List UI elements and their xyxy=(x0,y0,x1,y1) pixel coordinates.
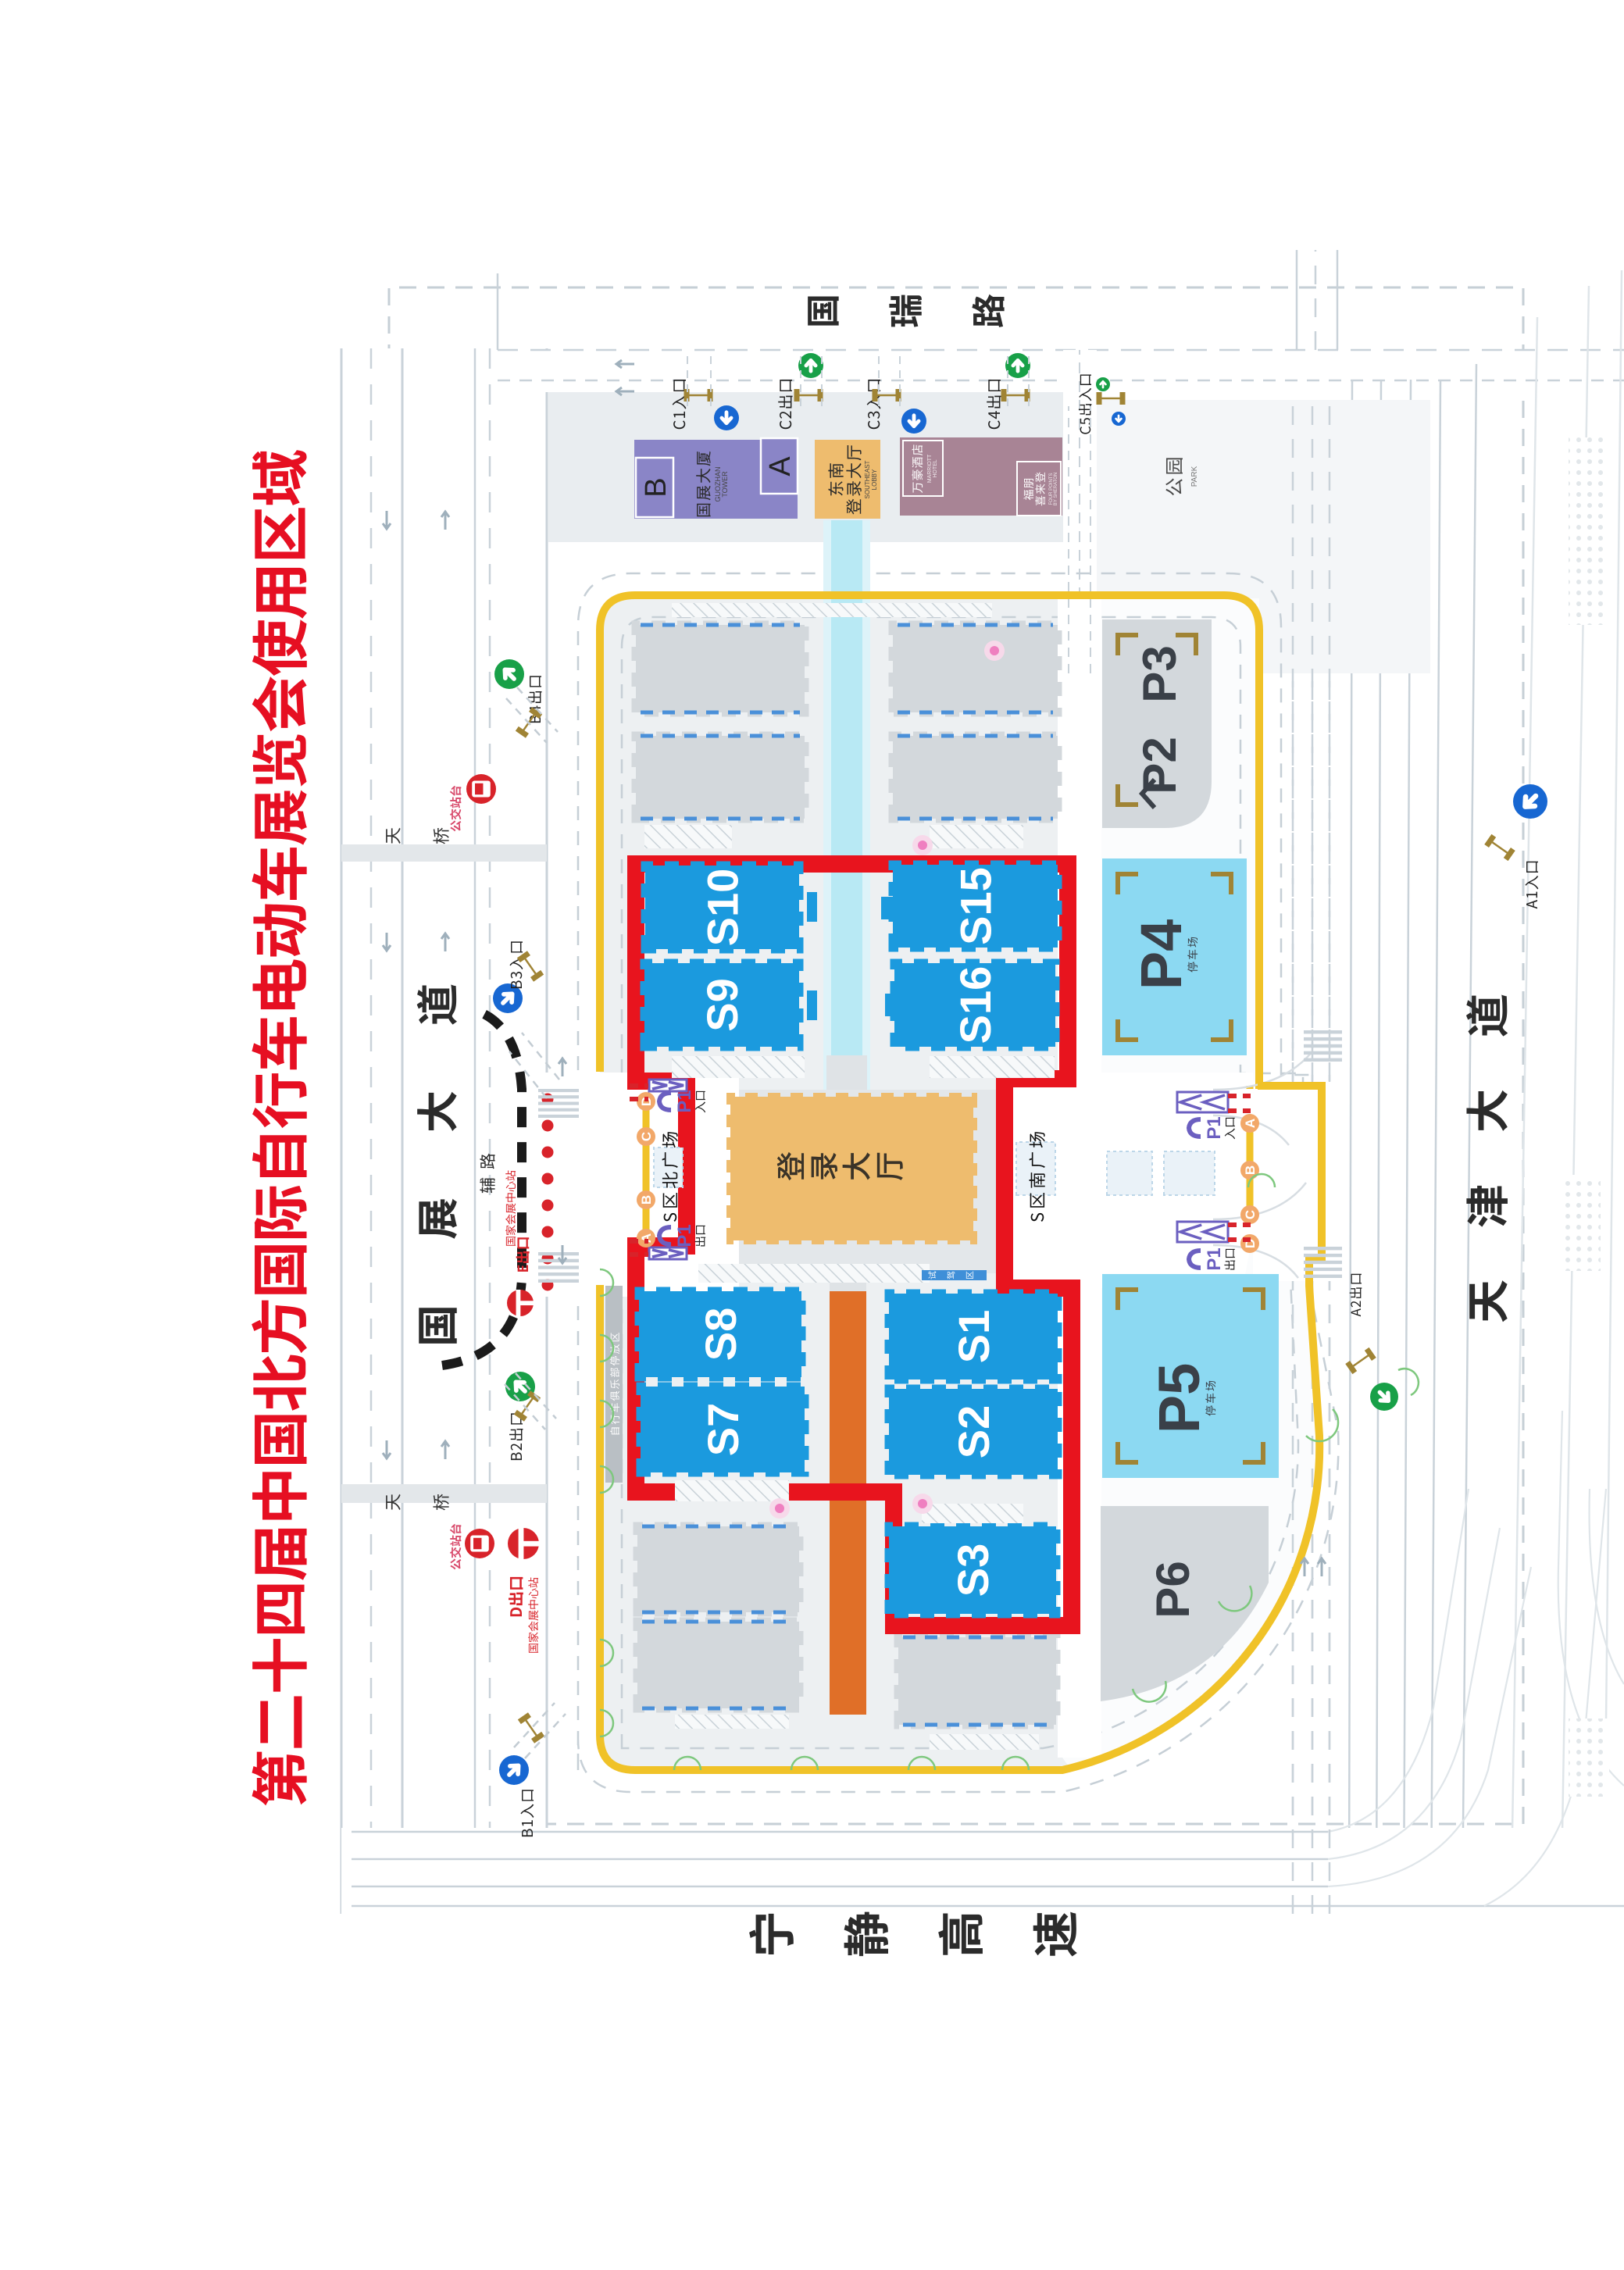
svg-text:S2: S2 xyxy=(949,1405,998,1459)
svg-text:S7: S7 xyxy=(698,1403,748,1457)
svg-text:A: A xyxy=(764,456,797,476)
svg-text:S10: S10 xyxy=(698,869,748,947)
svg-text:P6: P6 xyxy=(1147,1561,1199,1618)
svg-text:PARK: PARK xyxy=(1190,466,1199,487)
svg-text:P4: P4 xyxy=(1129,919,1194,990)
svg-text:P2: P2 xyxy=(1133,737,1186,794)
svg-text:S15: S15 xyxy=(951,867,1001,945)
svg-text:B: B xyxy=(640,477,673,497)
svg-text:TOWER: TOWER xyxy=(721,471,729,498)
svg-text:S8: S8 xyxy=(696,1308,745,1362)
svg-text:P1: P1 xyxy=(674,1224,695,1247)
svg-text:B: B xyxy=(1243,1165,1258,1175)
svg-text:P1: P1 xyxy=(1204,1247,1225,1270)
svg-text:S9: S9 xyxy=(698,978,747,1032)
svg-text:B: B xyxy=(639,1195,654,1205)
svg-text:HOTEL: HOTEL xyxy=(933,459,938,477)
svg-text:S16: S16 xyxy=(951,966,1000,1044)
svg-text:SOUTHEAST: SOUTHEAST xyxy=(864,460,871,498)
svg-text:MARRIOTT: MARRIOTT xyxy=(927,454,933,483)
svg-text:S3: S3 xyxy=(948,1544,998,1597)
svg-text:C: C xyxy=(639,1132,654,1141)
svg-text:LOBBY: LOBBY xyxy=(871,469,878,490)
svg-text:P1: P1 xyxy=(1204,1116,1225,1139)
svg-text:S1: S1 xyxy=(949,1310,998,1364)
svg-text:A: A xyxy=(1243,1119,1258,1128)
svg-text:BY SHERATON: BY SHERATON xyxy=(1054,473,1058,505)
svg-text:P1: P1 xyxy=(674,1090,695,1112)
svg-text:P5: P5 xyxy=(1147,1363,1212,1434)
svg-text:P3: P3 xyxy=(1133,645,1186,702)
svg-text:C: C xyxy=(1243,1210,1258,1219)
